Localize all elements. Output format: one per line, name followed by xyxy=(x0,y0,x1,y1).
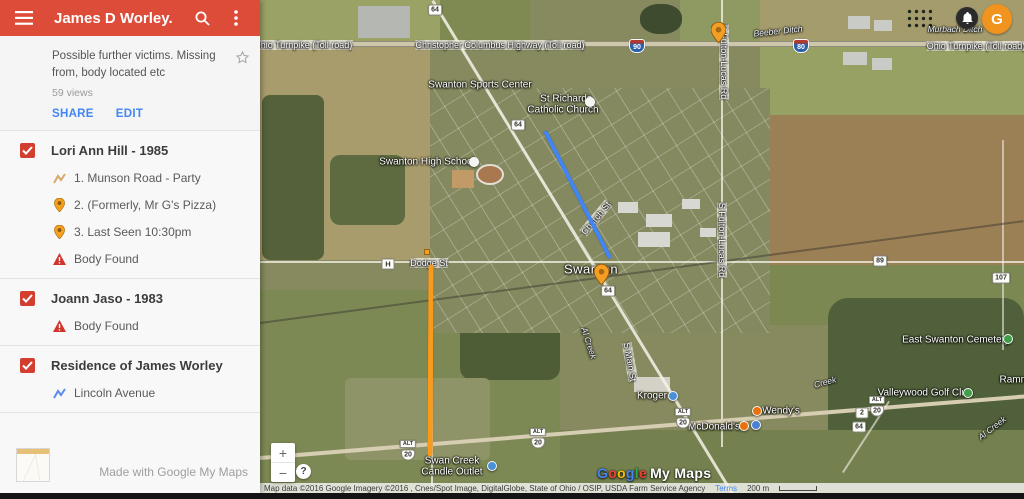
map-label: Kroger xyxy=(637,391,667,402)
warning-icon xyxy=(53,252,66,266)
google-my-maps-app: Ohio Turnpike (Toll road)Christopher Col… xyxy=(0,0,1024,499)
map-description: Possible further victims. Missing from, … xyxy=(52,48,246,81)
pin-icon xyxy=(53,225,66,239)
warning-icon xyxy=(53,319,66,333)
satellite-building xyxy=(646,214,672,227)
layer-joann-jaso: Joann Jaso - 1983 Body Found xyxy=(0,279,260,346)
notifications-bell-button[interactable] xyxy=(956,7,978,29)
route-overlay-orange[interactable] xyxy=(428,264,434,456)
restaurant-icon[interactable] xyxy=(752,406,762,416)
route-shield-alt: ALT xyxy=(869,396,885,404)
satellite-warehouse xyxy=(358,6,410,38)
view-count: 59 views xyxy=(52,87,246,99)
made-with-label: Made with Google My Maps xyxy=(99,465,248,479)
satellite-building xyxy=(452,170,474,188)
shopping-icon[interactable] xyxy=(668,391,678,401)
map-title: James D Worley. xyxy=(54,10,180,27)
satellite-building xyxy=(700,228,716,237)
layer-title: Joann Jaso - 1983 xyxy=(51,291,163,306)
cemetery-icon[interactable] xyxy=(1003,334,1013,344)
school-icon[interactable] xyxy=(469,157,479,167)
fulton-lucas-road xyxy=(721,0,723,447)
item-label: 2. (Formerly, Mr G's Pizza) xyxy=(74,198,216,212)
bottom-bar xyxy=(0,493,1024,499)
more-vert-icon xyxy=(234,10,238,26)
route-shield-89: 89 xyxy=(873,256,887,267)
search-button[interactable] xyxy=(190,6,214,30)
item-label: Body Found xyxy=(74,252,139,266)
zoom-out-button[interactable]: − xyxy=(271,463,295,482)
restaurant-icon[interactable] xyxy=(739,421,749,431)
satellite-warehouse xyxy=(848,16,870,29)
satellite-building xyxy=(618,202,638,213)
route-shield-20: 20 xyxy=(676,418,690,429)
scale-bar xyxy=(779,486,817,491)
map-square-marker[interactable] xyxy=(424,249,430,255)
layer-title: Lori Ann Hill - 1985 xyxy=(51,143,168,158)
satellite-pond xyxy=(640,4,682,34)
sidebar: James D Worley. Possible further victims… xyxy=(0,0,260,493)
layer-residence: Residence of James Worley Lincoln Avenue xyxy=(0,346,260,413)
layer-item[interactable]: 2. (Formerly, Mr G's Pizza) xyxy=(0,198,250,212)
satellite-track xyxy=(476,164,504,185)
golf-icon[interactable] xyxy=(963,388,973,398)
route-shield-h: H xyxy=(382,259,395,270)
layer-header[interactable]: Lori Ann Hill - 1985 xyxy=(0,143,250,158)
church-icon[interactable] xyxy=(585,97,595,107)
route-shield-2: 2 xyxy=(856,408,869,419)
item-label: 1. Munson Road - Party xyxy=(74,171,201,185)
route-shield-64: 64 xyxy=(852,422,866,433)
layer-checkbox[interactable] xyxy=(20,143,35,158)
menu-button[interactable] xyxy=(12,6,36,30)
satellite-warehouse xyxy=(872,58,892,70)
satellite-woods xyxy=(330,155,405,225)
check-icon xyxy=(22,294,33,303)
help-button[interactable]: ? xyxy=(296,464,311,479)
satellite-patch xyxy=(260,0,440,42)
edit-button[interactable]: EDIT xyxy=(116,108,143,120)
terms-link[interactable]: Terms xyxy=(715,484,737,493)
satellite-patch xyxy=(760,45,1024,115)
satellite-warehouse xyxy=(874,20,892,31)
shopping-icon[interactable] xyxy=(487,461,497,471)
hamburger-icon xyxy=(15,11,33,25)
sidebar-footer: Made with Google My Maps xyxy=(0,413,260,493)
satellite-building xyxy=(682,199,700,209)
attribution-text: Map data ©2016 Google Imagery ©2016 , Cn… xyxy=(264,484,705,493)
east-west-road xyxy=(260,261,1024,263)
pin-icon xyxy=(53,198,66,212)
star-button[interactable] xyxy=(235,50,250,70)
more-options-button[interactable] xyxy=(224,6,248,30)
search-icon xyxy=(195,11,210,26)
route-shield-alt: ALT xyxy=(400,440,416,448)
map-description-section: Possible further victims. Missing from, … xyxy=(0,36,260,131)
satellite-woods xyxy=(262,95,324,260)
route-line-icon xyxy=(53,171,66,185)
layer-item[interactable]: Body Found xyxy=(0,252,250,266)
bell-icon xyxy=(962,12,973,24)
share-button[interactable]: SHARE xyxy=(52,108,94,120)
attribution-bar: Map data ©2016 Google Imagery ©2016 , Cn… xyxy=(260,483,1024,493)
item-label: Lincoln Avenue xyxy=(74,386,155,400)
route-shield-90: 90 xyxy=(629,39,645,53)
route-107-road xyxy=(1002,140,1004,350)
sidebar-header: James D Worley. xyxy=(0,0,260,36)
map-pin-marker[interactable] xyxy=(711,22,726,48)
generic-poi-icon[interactable] xyxy=(751,420,761,430)
layer-checkbox[interactable] xyxy=(20,291,35,306)
satellite-warehouse xyxy=(843,52,867,65)
layer-item[interactable]: 3. Last Seen 10:30pm xyxy=(0,225,250,239)
item-label: Body Found xyxy=(74,319,139,333)
star-outline-icon xyxy=(235,50,250,65)
layer-item[interactable]: Lincoln Avenue xyxy=(0,386,250,400)
basemap-thumbnail[interactable] xyxy=(16,448,50,482)
check-icon xyxy=(22,146,33,155)
layer-title: Residence of James Worley xyxy=(51,358,223,373)
layer-lori-ann-hill: Lori Ann Hill - 1985 1. Munson Road - Pa… xyxy=(0,131,260,279)
route-shield-alt: ALT xyxy=(530,428,546,436)
satellite-town xyxy=(430,88,770,333)
satellite-orchard xyxy=(906,8,932,30)
layer-header[interactable]: Residence of James Worley xyxy=(0,358,250,373)
route-line-icon xyxy=(53,386,66,400)
account-avatar[interactable]: G xyxy=(982,4,1012,34)
route-shield-64: 64 xyxy=(511,120,525,131)
route-shield-107: 107 xyxy=(992,273,1010,284)
layer-header[interactable]: Joann Jaso - 1983 xyxy=(0,291,250,306)
zoom-control: + − xyxy=(271,443,295,482)
route-shield-64: 64 xyxy=(428,5,442,16)
satellite-field-brown xyxy=(765,115,1024,265)
zoom-in-button[interactable]: + xyxy=(271,443,295,463)
layer-checkbox[interactable] xyxy=(20,358,35,373)
satellite-building xyxy=(638,232,670,247)
layer-item[interactable]: Body Found xyxy=(0,319,250,333)
route-shield-alt: ALT xyxy=(675,408,691,416)
map-canvas[interactable]: Ohio Turnpike (Toll road)Christopher Col… xyxy=(260,0,1024,493)
route-shield-80: 80 xyxy=(793,39,809,53)
check-icon xyxy=(22,361,33,370)
scale-label: 200 m xyxy=(747,484,769,493)
item-label: 3. Last Seen 10:30pm xyxy=(74,225,191,239)
map-pin-marker[interactable] xyxy=(594,264,609,290)
layer-item[interactable]: 1. Munson Road - Party xyxy=(0,171,250,185)
